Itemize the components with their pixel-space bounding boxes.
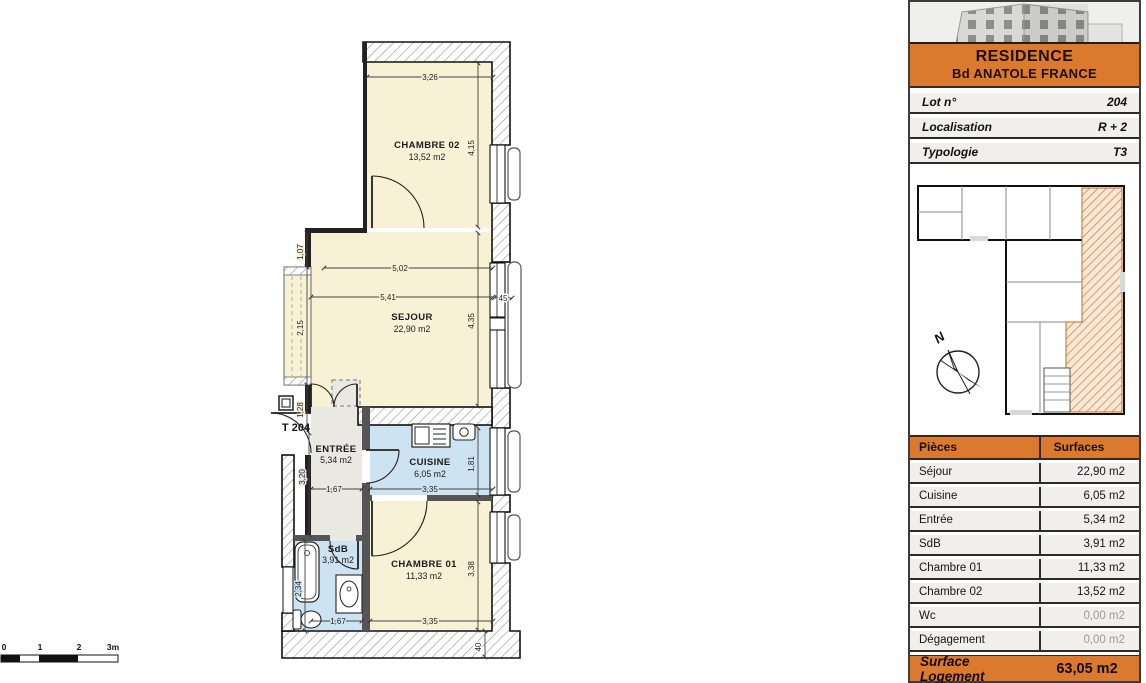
room-entree (311, 407, 362, 541)
wall-right-3 (492, 495, 510, 512)
lot-value: 204 (1107, 95, 1127, 109)
row-value: 13,52 m2 (1039, 583, 1139, 602)
dim-sejour-height: 4,35 (467, 313, 476, 329)
dim-cuisine-height: 1,81 (467, 456, 476, 472)
scale-1: 1 (38, 642, 43, 652)
surfaces-table: Pièces Surfaces Séjour 22,90 m2 Cuisine … (910, 435, 1139, 681)
window-chambre-01 (490, 512, 520, 563)
window-cuisine (490, 428, 520, 495)
shaft (279, 396, 293, 410)
dim-entree-height: 3,20 (298, 469, 307, 485)
key-plan-image: N (910, 172, 1139, 430)
info-row-localisation: Localisation R + 2 (910, 118, 1139, 139)
surface-logement-value: 63,05 m2 (1035, 661, 1139, 677)
dim-sdb-width: 1,67 (330, 617, 346, 626)
surface-logement-label: Surface Logement (910, 654, 1035, 683)
row-label: Séjour (910, 463, 1039, 482)
label-cuisine: CUISINE (409, 457, 450, 468)
table-row-chambre-02: Chambre 02 13,52 m2 (910, 583, 1139, 604)
residence-header: RESIDENCE Bd ANATOLE FRANCE (910, 44, 1139, 88)
info-row-typologie: Typologie T3 (910, 143, 1139, 164)
dim-entree-width: 1,67 (326, 485, 342, 494)
info-rows: Lot n° 204 Localisation R + 2 Typologie … (910, 88, 1139, 164)
window-sdb (283, 567, 293, 613)
lot-label: Lot n° (922, 95, 956, 109)
building-render-image (910, 2, 1139, 44)
keyplan-stairs (1044, 368, 1070, 412)
table-row-cuisine: Cuisine 6,05 m2 (910, 487, 1139, 508)
table-header: Pièces Surfaces (910, 435, 1139, 460)
row-label: Cuisine (910, 487, 1039, 506)
unit-label: T 204 (282, 422, 311, 434)
area-entree: 5,34 m2 (320, 455, 352, 465)
toilet (293, 610, 321, 629)
building-render (910, 2, 1139, 44)
localisation-label: Localisation (922, 120, 992, 134)
row-value: 0,00 m2 (1039, 607, 1139, 626)
wall-right-1 (492, 203, 510, 262)
plan-sheet: 3,26 4,15 5,02 5,41 4,35 45 1,07 2,15 1,… (0, 0, 1146, 683)
table-row-entree: Entrée 5,34 m2 (910, 511, 1139, 532)
table-row-sejour: Séjour 22,90 m2 (910, 463, 1139, 484)
row-value: 3,91 m2 (1039, 535, 1139, 554)
dim-cuisine-width: 3,35 (422, 485, 438, 494)
area-sdb: 3,91 m2 (322, 555, 354, 565)
dim-bottom-wall: 40 (474, 642, 483, 651)
wall-left-2 (282, 613, 294, 631)
wall-mid (358, 407, 492, 425)
row-label: Dégagement (910, 631, 1039, 650)
dim-left-top: 1,07 (296, 244, 305, 260)
row-value: 11,33 m2 (1039, 559, 1139, 578)
residence-name: RESIDENCE (910, 48, 1139, 66)
scale-0: 0 (2, 642, 7, 652)
north-label: N (931, 328, 948, 346)
row-label: Chambre 01 (910, 559, 1039, 578)
row-value: 5,34 m2 (1039, 511, 1139, 530)
table-footer: Surface Logement 63,05 m2 (910, 655, 1139, 681)
area-cuisine: 6,05 m2 (414, 469, 446, 479)
bathroom-sink (336, 575, 362, 613)
scale-2: 2 (77, 642, 82, 652)
scale-3m: 3m (107, 642, 120, 652)
title-block-sidebar: RESIDENCE Bd ANATOLE FRANCE Lot n° 204 L… (908, 0, 1141, 683)
north-compass: N (931, 328, 982, 394)
dim-sdb-height: 2,34 (294, 581, 303, 597)
label-sejour: SEJOUR (391, 312, 432, 323)
wall-left-1 (282, 455, 294, 567)
row-value: 0,00 m2 (1039, 631, 1139, 650)
label-chambre-02: CHAMBRE 02 (394, 140, 460, 151)
dim-window-mullion: 45 (499, 294, 508, 303)
scale-bar: 0 1 2 3m (1, 642, 120, 662)
row-value: 22,90 m2 (1039, 463, 1139, 482)
typologie-value: T3 (1113, 145, 1127, 159)
label-chambre-01: CHAMBRE 01 (391, 559, 457, 570)
table-row-wc: Wc 0,00 m2 (910, 607, 1139, 628)
key-plan: N (910, 164, 1139, 435)
table-row-sdb: SdB 3,91 m2 (910, 535, 1139, 556)
dim-ch1-width: 3,35 (422, 617, 438, 626)
area-sejour: 22,90 m2 (394, 324, 431, 334)
dim-left-mid: 2,15 (296, 320, 305, 336)
table-row-degagement: Dégagement 0,00 m2 (910, 631, 1139, 652)
kitchen-sink (453, 424, 475, 440)
row-label: Entrée (910, 511, 1039, 530)
header-pieces: Pièces (910, 437, 1039, 458)
dim-ch1-height: 3,38 (467, 561, 476, 577)
dim-ch2-height: 4,15 (467, 140, 476, 156)
dim-sejour-top: 5,02 (392, 264, 408, 273)
row-label: Wc (910, 607, 1039, 626)
dim-ch2-width: 3,26 (422, 73, 438, 82)
floor-plan: 3,26 4,15 5,02 5,41 4,35 45 1,07 2,15 1,… (0, 0, 908, 683)
typologie-label: Typologie (922, 145, 978, 159)
row-value: 6,05 m2 (1039, 487, 1139, 506)
window-chambre-02 (490, 145, 520, 203)
area-chambre-02: 13,52 m2 (409, 152, 446, 162)
residence-address: Bd ANATOLE FRANCE (910, 66, 1139, 81)
label-entree: ENTRÉE (316, 444, 357, 455)
dim-sejour-mid: 5,41 (380, 293, 396, 302)
row-label: SdB (910, 535, 1039, 554)
window-sejour (490, 262, 521, 388)
table-row-chambre-01: Chambre 01 11,33 m2 (910, 559, 1139, 580)
label-sdb: SdB (328, 544, 348, 555)
wall-right-2 (492, 388, 510, 428)
info-row-lot: Lot n° 204 (910, 93, 1139, 114)
area-chambre-01: 11,33 m2 (406, 571, 442, 581)
row-label: Chambre 02 (910, 583, 1039, 602)
dim-left-low: 1,28 (296, 402, 305, 418)
localisation-value: R + 2 (1098, 120, 1127, 134)
stove (412, 424, 450, 447)
header-surfaces: Surfaces (1039, 437, 1139, 458)
